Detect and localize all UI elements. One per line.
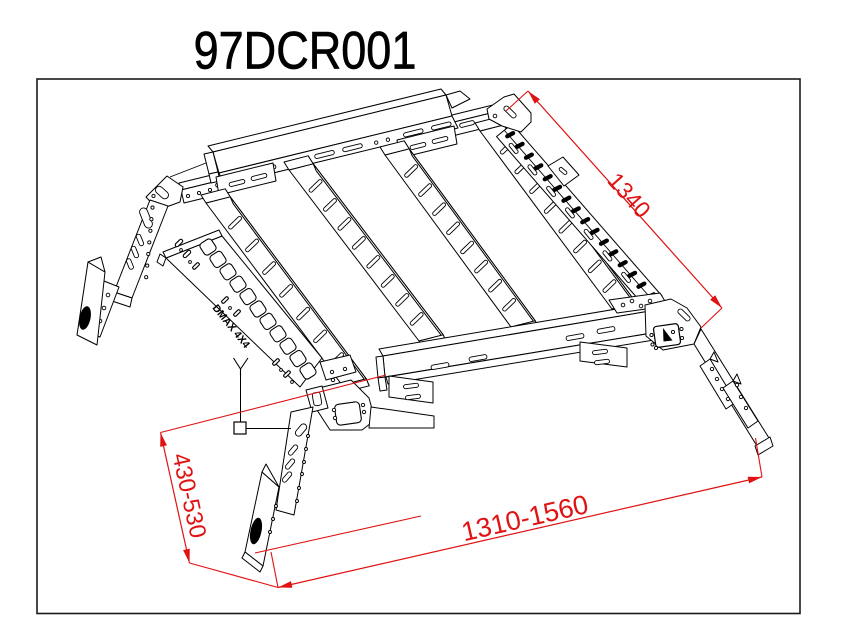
svg-text:97DCR001: 97DCR001 <box>194 21 417 80</box>
